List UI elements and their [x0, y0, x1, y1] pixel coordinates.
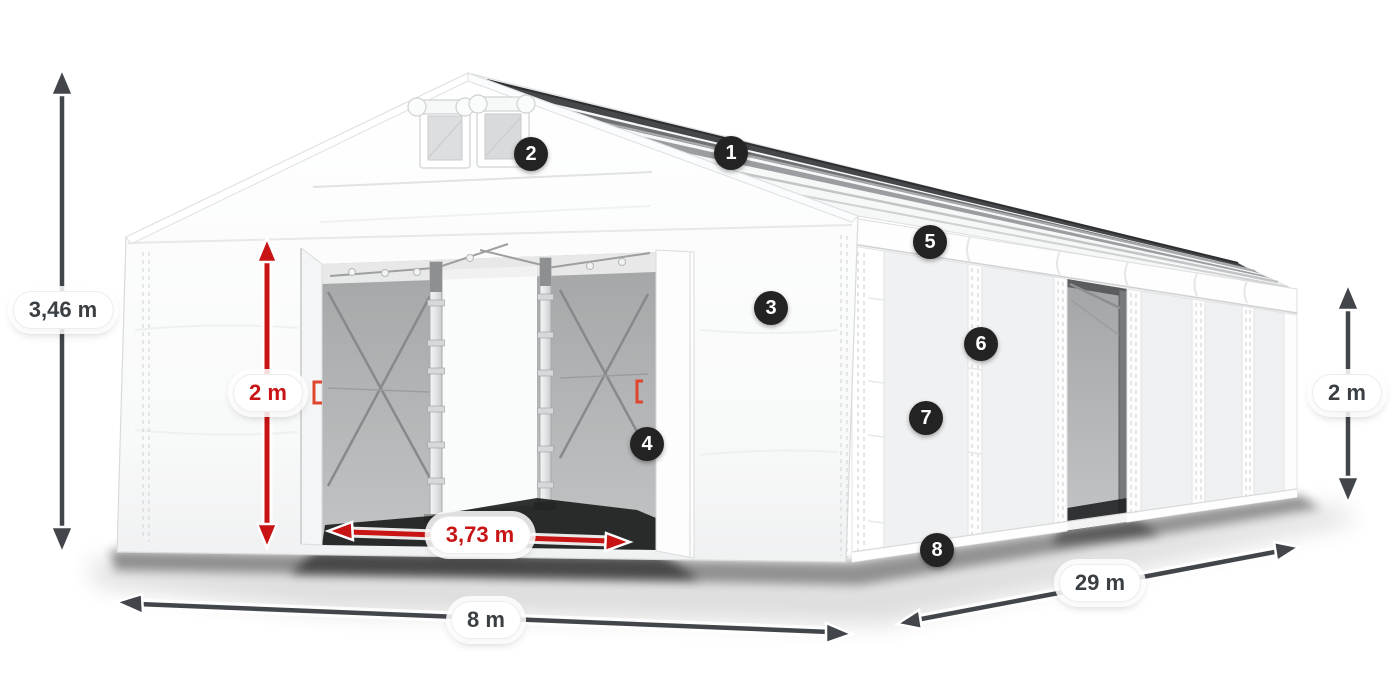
vent-roller [408, 98, 474, 116]
vent-roller [469, 95, 535, 113]
side-height-label: 2 m [1312, 374, 1382, 412]
marker-2-badge[interactable]: 2 [514, 137, 548, 171]
marker-8-badge[interactable]: 8 [920, 533, 954, 567]
marker-3-badge[interactable]: 3 [754, 291, 788, 325]
marker-7-badge[interactable]: 7 [909, 401, 943, 435]
front-door-opening [322, 244, 656, 550]
side-door-opening [1067, 279, 1127, 531]
marker-1-badge[interactable]: 1 [714, 136, 748, 170]
tent-illustration [0, 0, 1400, 700]
tent-dimensions-diagram: 3,46 m 2 m 3,73 m 8 m 29 m 2 m 1 2 3 4 5… [0, 0, 1400, 700]
marker-4-badge[interactable]: 4 [630, 427, 664, 461]
door-height-label: 2 m [233, 374, 303, 412]
marker-6-badge[interactable]: 6 [964, 327, 998, 361]
total-height-label: 3,46 m [13, 291, 114, 329]
front-width-label: 8 m [451, 601, 521, 639]
length-label: 29 m [1059, 564, 1141, 602]
door-width-label: 3,73 m [430, 516, 531, 554]
marker-5-badge[interactable]: 5 [913, 225, 947, 259]
